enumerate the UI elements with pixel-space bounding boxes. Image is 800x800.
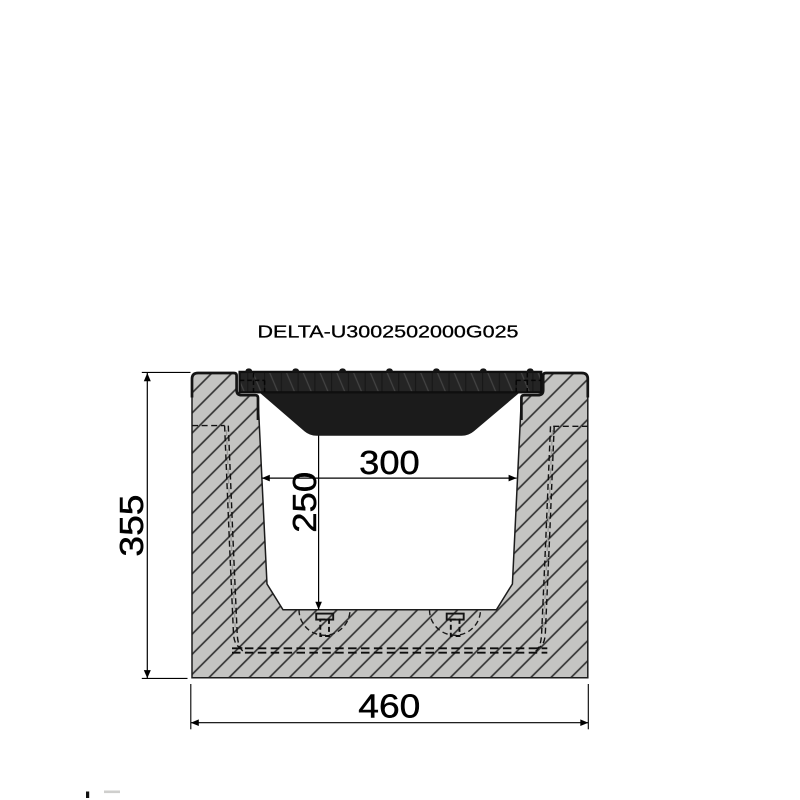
svg-text:460: 460 [358,688,420,725]
svg-text:300: 300 [359,444,420,481]
svg-text:355: 355 [113,495,150,557]
svg-text:DELTA-U3002502000G025: DELTA-U3002502000G025 [258,322,519,342]
svg-text:250: 250 [286,472,323,533]
